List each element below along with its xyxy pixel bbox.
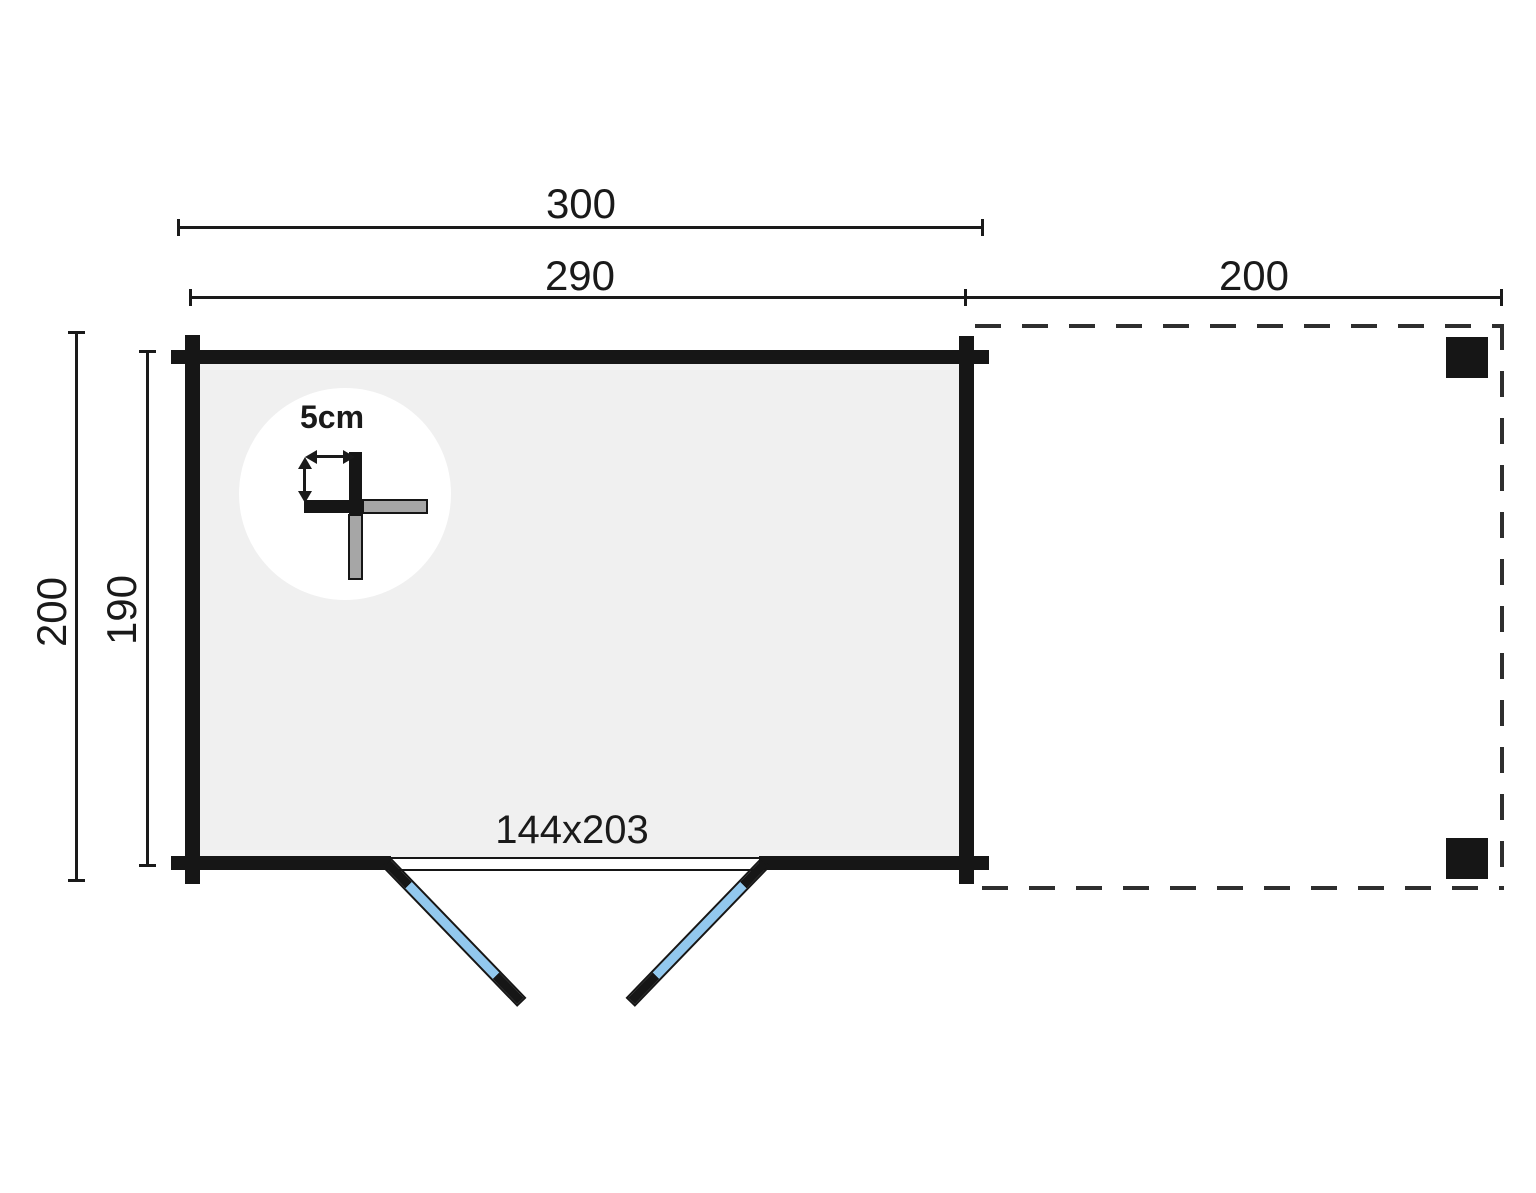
- dim-cabin-depth-line: [146, 352, 149, 867]
- arrowhead-right-icon: [343, 450, 355, 464]
- dim-tick: [1500, 289, 1503, 306]
- dim-cabin-width-line: [191, 296, 967, 299]
- dim-cabin-width-label: 290: [480, 254, 680, 298]
- dim-tick: [139, 864, 156, 867]
- canopy-outline-top: [975, 324, 1504, 328]
- cabin-left-wall: [185, 335, 200, 884]
- arrowhead-up-icon: [298, 457, 312, 469]
- dim-tick: [139, 350, 156, 353]
- cabin-top-wall: [171, 350, 989, 364]
- door-size-label: 144x203: [452, 808, 692, 852]
- cabin-bottom-wall-left: [171, 856, 391, 870]
- dim-cabin-depth-label: 190: [100, 550, 144, 670]
- log-joint-horizontal-gray: [362, 499, 428, 514]
- log-joint-horizontal-black: [304, 500, 364, 513]
- canopy-post-bottom-right: [1446, 838, 1488, 879]
- dim-overall-width-line: [179, 226, 983, 229]
- door-leaf-left: [382, 858, 527, 1007]
- dim-overall-width-label: 300: [481, 182, 681, 226]
- canopy-outline-bottom: [982, 886, 1504, 890]
- wall-thickness-label: 5cm: [280, 400, 384, 434]
- canopy-post-top-right: [1446, 337, 1488, 378]
- width-arrow-icon: [314, 455, 346, 458]
- cabin-right-wall: [959, 336, 974, 884]
- canopy-outline-right: [1500, 324, 1504, 890]
- dim-tick: [68, 331, 85, 334]
- dim-overall-depth-label: 200: [30, 552, 74, 672]
- door-leaf-right: [626, 858, 771, 1007]
- dim-tick: [189, 289, 192, 306]
- floorplan: 300 290 200 200 190 144x203 5cm: [0, 0, 1536, 1193]
- door-opening: [389, 857, 761, 871]
- dim-canopy-width-line: [967, 296, 1503, 299]
- dim-overall-depth-line: [75, 333, 78, 881]
- cabin-bottom-wall-right: [759, 856, 989, 870]
- dim-canopy-width-label: 200: [1154, 254, 1354, 298]
- log-joint-vertical-gray: [348, 514, 363, 580]
- dim-tick: [68, 879, 85, 882]
- arrowhead-down-icon: [298, 491, 312, 503]
- dim-tick: [981, 219, 984, 236]
- dim-tick: [177, 219, 180, 236]
